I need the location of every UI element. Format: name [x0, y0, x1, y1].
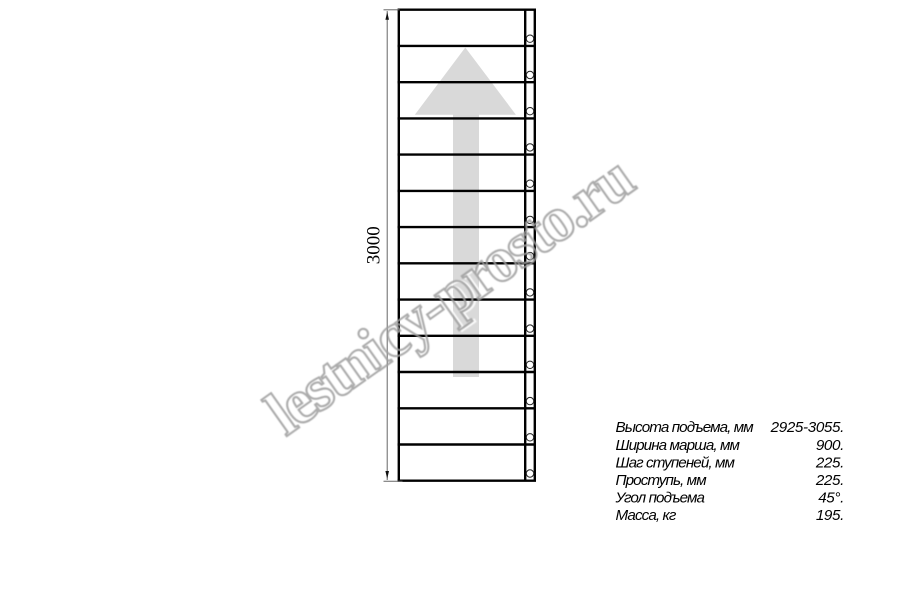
svg-text:225.: 225.: [815, 454, 844, 471]
svg-text:3000: 3000: [364, 226, 385, 264]
svg-text:900.: 900.: [816, 437, 844, 454]
svg-text:Угол подъема: Угол подъема: [615, 490, 705, 507]
svg-text:2925-3055.: 2925-3055.: [770, 419, 844, 436]
svg-text:Ширина марша, мм: Ширина марша, мм: [616, 437, 741, 454]
svg-text:Шаг ступеней, мм: Шаг ступеней, мм: [616, 454, 736, 471]
svg-text:lestnicy-prosto.ru: lestnicy-prosto.ru: [253, 142, 645, 448]
svg-text:Высота подъема, мм: Высота подъема, мм: [616, 419, 755, 436]
svg-text:Масса, кг: Масса, кг: [616, 507, 677, 524]
svg-text:225.: 225.: [815, 472, 844, 489]
svg-text:45°.: 45°.: [818, 490, 844, 507]
svg-text:195.: 195.: [816, 507, 844, 524]
svg-text:Проступь, мм: Проступь, мм: [616, 472, 708, 489]
